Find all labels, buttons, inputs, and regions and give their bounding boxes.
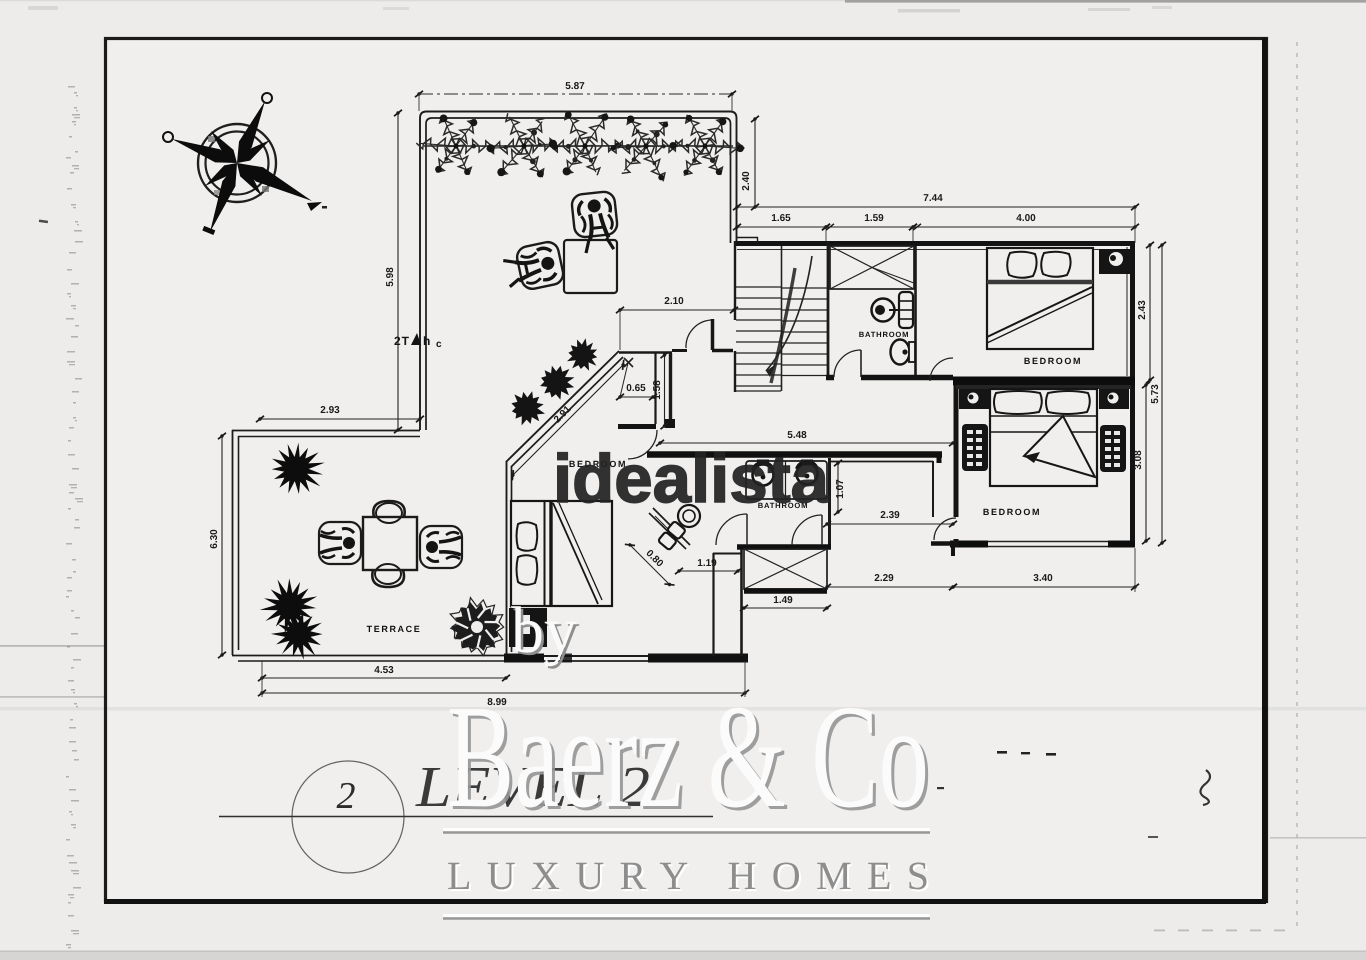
svg-text:BATHROOM: BATHROOM xyxy=(859,330,910,339)
svg-text:idealista: idealista xyxy=(553,441,830,517)
svg-text:c: c xyxy=(436,339,442,350)
svg-text:h: h xyxy=(423,334,430,348)
svg-text:0.65: 0.65 xyxy=(626,383,646,394)
svg-text:2.39: 2.39 xyxy=(880,510,900,521)
svg-text:by: by xyxy=(511,594,577,667)
svg-text:5.98: 5.98 xyxy=(385,267,396,287)
svg-text:2T: 2T xyxy=(394,334,410,348)
svg-text:1.58: 1.58 xyxy=(652,380,663,400)
svg-text:BEDROOM: BEDROOM xyxy=(1024,356,1082,366)
svg-text:1.19: 1.19 xyxy=(697,558,717,569)
svg-text:5.87: 5.87 xyxy=(565,81,585,92)
svg-text:Baerz & Co: Baerz & Co xyxy=(447,675,929,839)
svg-text:1.49: 1.49 xyxy=(773,595,793,606)
svg-text:TERRACE: TERRACE xyxy=(367,624,422,634)
svg-text:BEDROOM: BEDROOM xyxy=(983,507,1041,517)
svg-text:2.93: 2.93 xyxy=(320,405,340,416)
svg-text:2: 2 xyxy=(337,775,356,817)
svg-text:2.29: 2.29 xyxy=(874,573,894,584)
svg-text:1.07: 1.07 xyxy=(835,479,846,499)
svg-text:4.00: 4.00 xyxy=(1016,213,1036,224)
svg-text:5.48: 5.48 xyxy=(787,430,807,441)
svg-text:1.59: 1.59 xyxy=(864,213,884,224)
svg-text:6.30: 6.30 xyxy=(209,529,220,549)
svg-text:2.10: 2.10 xyxy=(664,296,684,307)
svg-text:4.53: 4.53 xyxy=(374,665,394,676)
svg-text:3.08: 3.08 xyxy=(1133,450,1144,470)
svg-text:1.65: 1.65 xyxy=(771,213,791,224)
svg-text:2.40: 2.40 xyxy=(741,171,752,191)
svg-text:3.40: 3.40 xyxy=(1033,573,1053,584)
svg-text:7.44: 7.44 xyxy=(923,193,943,204)
svg-text:2.43: 2.43 xyxy=(1137,300,1148,320)
svg-text:5.73: 5.73 xyxy=(1150,384,1161,404)
